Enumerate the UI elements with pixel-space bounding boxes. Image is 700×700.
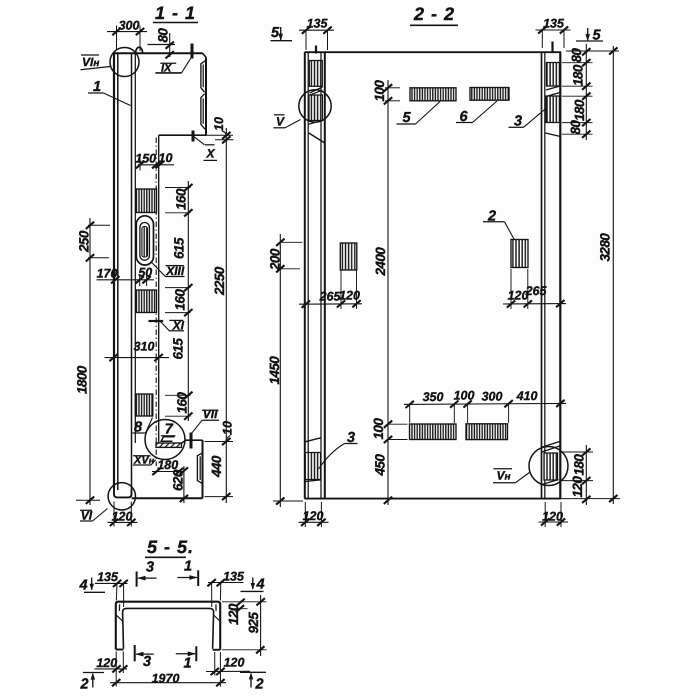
svg-text:265: 265 <box>319 289 342 303</box>
svg-text:2: 2 <box>80 677 89 693</box>
svg-text:Vн: Vн <box>497 469 511 483</box>
svg-text:1800: 1800 <box>75 365 90 394</box>
svg-text:7: 7 <box>165 422 174 438</box>
svg-text:2: 2 <box>255 677 264 693</box>
svg-text:2: 2 <box>487 209 496 225</box>
svg-text:VIн: VIн <box>82 55 99 69</box>
svg-text:135: 135 <box>223 570 245 584</box>
svg-text:4: 4 <box>79 578 88 594</box>
svg-text:180: 180 <box>571 64 586 86</box>
svg-text:2250: 2250 <box>212 266 227 296</box>
svg-text:120: 120 <box>226 603 241 625</box>
svg-text:135: 135 <box>307 17 329 31</box>
svg-text:250: 250 <box>77 230 92 253</box>
svg-text:6: 6 <box>460 109 469 125</box>
svg-text:10: 10 <box>212 117 226 131</box>
svg-text:180: 180 <box>157 458 178 472</box>
svg-text:180: 180 <box>572 99 587 121</box>
svg-text:5: 5 <box>271 25 280 41</box>
svg-text:3: 3 <box>143 654 151 670</box>
svg-text:265: 265 <box>525 284 548 298</box>
svg-text:3280: 3280 <box>598 233 613 262</box>
svg-text:160: 160 <box>173 289 188 311</box>
svg-text:120: 120 <box>339 288 360 302</box>
svg-text:VI: VI <box>81 509 93 523</box>
svg-text:1 - 1: 1 - 1 <box>155 3 196 23</box>
svg-text:440: 440 <box>209 455 224 478</box>
svg-text:350: 350 <box>423 390 444 404</box>
svg-text:1: 1 <box>184 656 192 672</box>
svg-text:120: 120 <box>96 656 117 670</box>
svg-text:3: 3 <box>347 430 355 446</box>
svg-text:310: 310 <box>134 339 155 353</box>
svg-text:5: 5 <box>403 110 412 126</box>
svg-text:10: 10 <box>159 151 173 165</box>
svg-text:8: 8 <box>134 420 143 436</box>
svg-text:150: 150 <box>135 151 156 165</box>
svg-text:120: 120 <box>570 476 585 498</box>
svg-text:5: 5 <box>593 28 602 44</box>
svg-text:160: 160 <box>175 392 190 414</box>
svg-text:620: 620 <box>171 469 186 491</box>
svg-text:120: 120 <box>303 509 324 523</box>
svg-text:925: 925 <box>246 612 261 634</box>
svg-text:170: 170 <box>97 266 118 280</box>
svg-text:5 - 5.: 5 - 5. <box>147 537 194 557</box>
svg-text:3: 3 <box>146 560 154 576</box>
svg-text:1450: 1450 <box>267 356 282 385</box>
svg-text:4: 4 <box>256 577 265 593</box>
svg-text:V: V <box>276 115 285 129</box>
svg-text:410: 410 <box>516 389 538 403</box>
svg-text:300: 300 <box>482 390 503 404</box>
svg-text:135: 135 <box>543 17 565 31</box>
svg-text:100: 100 <box>371 418 386 440</box>
svg-text:3: 3 <box>514 114 522 130</box>
svg-text:120: 120 <box>224 656 245 670</box>
svg-text:80: 80 <box>156 28 171 43</box>
svg-text:10: 10 <box>221 421 235 435</box>
svg-text:XI: XI <box>172 319 185 333</box>
svg-text:80: 80 <box>568 120 583 135</box>
svg-text:2400: 2400 <box>373 247 388 277</box>
svg-text:1: 1 <box>93 79 101 95</box>
svg-text:120: 120 <box>112 510 133 524</box>
svg-text:120: 120 <box>542 509 563 523</box>
svg-text:615: 615 <box>172 237 187 259</box>
svg-text:135: 135 <box>97 570 119 584</box>
svg-text:IX: IX <box>161 62 172 74</box>
svg-text:X: X <box>206 146 216 160</box>
svg-text:100: 100 <box>372 80 387 102</box>
svg-text:VII: VII <box>203 407 218 421</box>
svg-text:100: 100 <box>454 389 475 403</box>
svg-text:1970: 1970 <box>152 672 180 686</box>
svg-text:180: 180 <box>572 454 587 476</box>
svg-text:XIII: XIII <box>165 264 185 278</box>
svg-text:50: 50 <box>138 265 152 279</box>
svg-text:300: 300 <box>119 19 140 33</box>
svg-text:450: 450 <box>373 454 388 477</box>
svg-text:1: 1 <box>184 559 192 575</box>
svg-text:2 - 2: 2 - 2 <box>413 4 455 24</box>
svg-text:200: 200 <box>268 248 283 271</box>
svg-text:XVн: XVн <box>133 455 155 467</box>
svg-text:160: 160 <box>174 188 189 210</box>
svg-text:80: 80 <box>569 48 584 63</box>
svg-text:615: 615 <box>171 338 186 360</box>
